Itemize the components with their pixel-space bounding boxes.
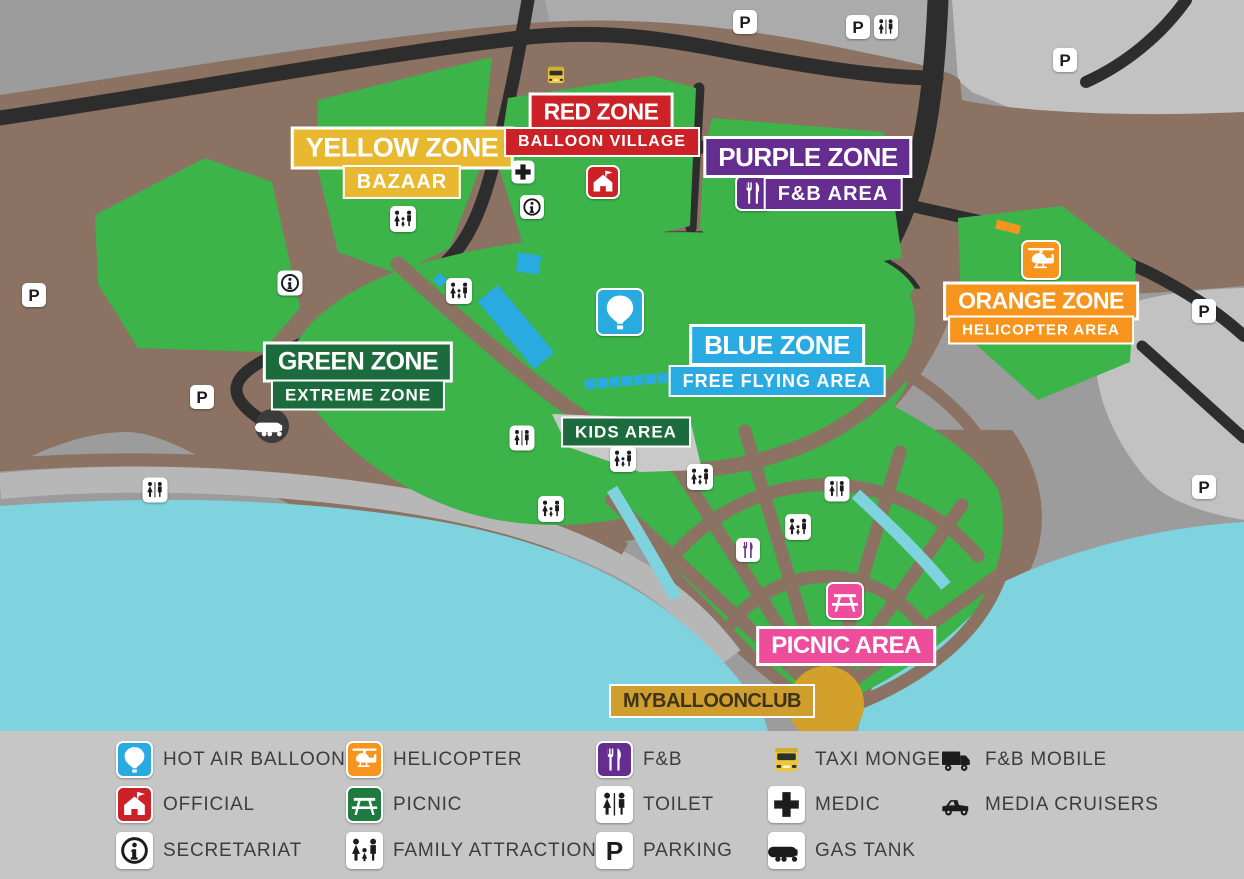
legend-item-label: F&B MOBILE: [985, 749, 1107, 771]
launch-pad: [620, 376, 632, 387]
toilet-icon: [143, 478, 168, 503]
legend-item-label: PICNIC: [393, 794, 462, 816]
legend-item-label: PARKING: [643, 840, 733, 862]
legend-item: OFFICIAL: [116, 786, 255, 823]
zone-label-kids-area: KIDS AREA: [561, 417, 691, 448]
zone-label-myballoonclub: MYBALLOONCLUB: [609, 684, 815, 718]
medic-icon: [768, 786, 805, 823]
toilet-icon: [596, 786, 633, 823]
family-icon: [538, 496, 564, 522]
svg-text:P: P: [1198, 302, 1209, 321]
parking-icon: P: [190, 385, 214, 409]
zone-label-purple: PURPLE ZONE: [703, 136, 912, 178]
legend-item: SECRETARIAT: [116, 832, 302, 869]
medic-icon: [512, 161, 535, 184]
svg-text:P: P: [606, 836, 623, 866]
legend-item-label: HELICOPTER: [393, 749, 522, 771]
zone-label-yellow: YELLOW ZONE: [291, 127, 514, 170]
legend-item-label: TAXI MONGER: [815, 749, 955, 771]
zone-sublabel-orange: HELICOPTER AREA: [948, 316, 1134, 345]
svg-text:P: P: [852, 18, 863, 37]
media-cruisers-icon: [938, 786, 975, 823]
event-map: PPPPPPP YELLOW ZONE BAZAAR RED ZONE BALL…: [0, 0, 1244, 879]
legend-item-label: TOILET: [643, 794, 714, 816]
family-icon: [346, 832, 383, 869]
toilet-icon: [510, 426, 535, 451]
launch-pad: [515, 252, 540, 274]
launch-pad: [644, 374, 656, 385]
legend-item-label: FAMILY ATTRACTION: [393, 840, 597, 862]
zone-label-red: RED ZONE: [529, 93, 674, 132]
legend-item: MEDIC: [768, 786, 880, 823]
legend-item-label: OFFICIAL: [163, 794, 255, 816]
zone-label-green: GREEN ZONE: [263, 342, 453, 383]
zone-sublabel-red: BALLOON VILLAGE: [504, 127, 700, 157]
legend-item: PICNIC: [346, 786, 462, 823]
launch-pad: [596, 378, 608, 389]
picnic-icon: [346, 786, 383, 823]
legend-item: F&B MOBILE: [938, 741, 1107, 778]
legend-item: F&B: [596, 741, 682, 778]
zone-sublabel-green: EXTREME ZONE: [271, 380, 445, 411]
balloon-zone-icon: [596, 288, 644, 336]
family-icon: [687, 464, 713, 490]
legend-item: HOT AIR BALLOON: [116, 741, 346, 778]
taxi-monger-icon: [768, 741, 805, 778]
svg-text:P: P: [1198, 478, 1209, 497]
legend-item-label: MEDIC: [815, 794, 880, 816]
parking-icon: P: [22, 283, 46, 307]
launch-pad: [656, 373, 668, 384]
toilet-icon: [874, 15, 898, 39]
zone-sublabel-purple: F&B AREA: [764, 177, 903, 211]
toilet-icon: [825, 477, 850, 502]
parking-icon: P: [1053, 48, 1077, 72]
zone-label-picnic-area: PICNIC AREA: [756, 626, 936, 666]
legend-item-label: HOT AIR BALLOON: [163, 749, 346, 771]
legend-item: HELICOPTER: [346, 741, 522, 778]
legend-item: TAXI MONGER: [768, 741, 955, 778]
secretariat-icon: [278, 271, 303, 296]
svg-text:P: P: [1059, 51, 1070, 70]
parking-icon: P: [596, 832, 633, 869]
parking-icon: P: [1192, 299, 1216, 323]
picnic-zone-icon: [826, 582, 864, 620]
official-icon: [586, 165, 620, 199]
helicopter-zone-icon: [1021, 240, 1061, 280]
parking-icon: P: [733, 10, 757, 34]
fnb-mobile-icon: [938, 741, 975, 778]
secretariat-icon: [520, 195, 544, 219]
family-icon: [785, 514, 811, 540]
launch-pad: [608, 377, 620, 388]
fnb-icon: [596, 741, 633, 778]
gas-tank-map-icon: [255, 409, 289, 443]
svg-text:P: P: [28, 286, 39, 305]
parking-icon: P: [1192, 475, 1216, 499]
family-icon: [390, 206, 416, 232]
svg-text:P: P: [196, 388, 207, 407]
legend-bar: HOT AIR BALLOONOFFICIALSECRETARIATHELICO…: [0, 731, 1244, 879]
legend-item-label: MEDIA CRUISERS: [985, 794, 1159, 816]
launch-pad: [584, 379, 596, 390]
zone-sublabel-yellow: BAZAAR: [343, 165, 461, 199]
legend-item: PPARKING: [596, 832, 733, 869]
official-icon: [116, 786, 153, 823]
legend-item: TOILET: [596, 786, 714, 823]
taxi-monger-icon: [543, 62, 569, 88]
secretariat-icon: [116, 832, 153, 869]
fnb-small-icon: [736, 538, 760, 562]
legend-item-label: GAS TANK: [815, 840, 916, 862]
family-icon: [446, 278, 472, 304]
legend-item-label: SECRETARIAT: [163, 840, 302, 862]
legend-item: MEDIA CRUISERS: [938, 786, 1159, 823]
legend-item-label: F&B: [643, 749, 682, 771]
family-icon: [610, 446, 636, 472]
svg-text:P: P: [739, 13, 750, 32]
legend-item: FAMILY ATTRACTION: [346, 832, 597, 869]
helicopter-icon: [346, 741, 383, 778]
zone-label-blue: BLUE ZONE: [689, 324, 865, 366]
hot-air-balloon-icon: [116, 741, 153, 778]
parking-icon: P: [846, 15, 870, 39]
gas-tank-icon: [768, 832, 805, 869]
legend-item: GAS TANK: [768, 832, 916, 869]
zone-sublabel-blue: FREE FLYING AREA: [669, 365, 886, 397]
launch-pad: [632, 375, 644, 386]
